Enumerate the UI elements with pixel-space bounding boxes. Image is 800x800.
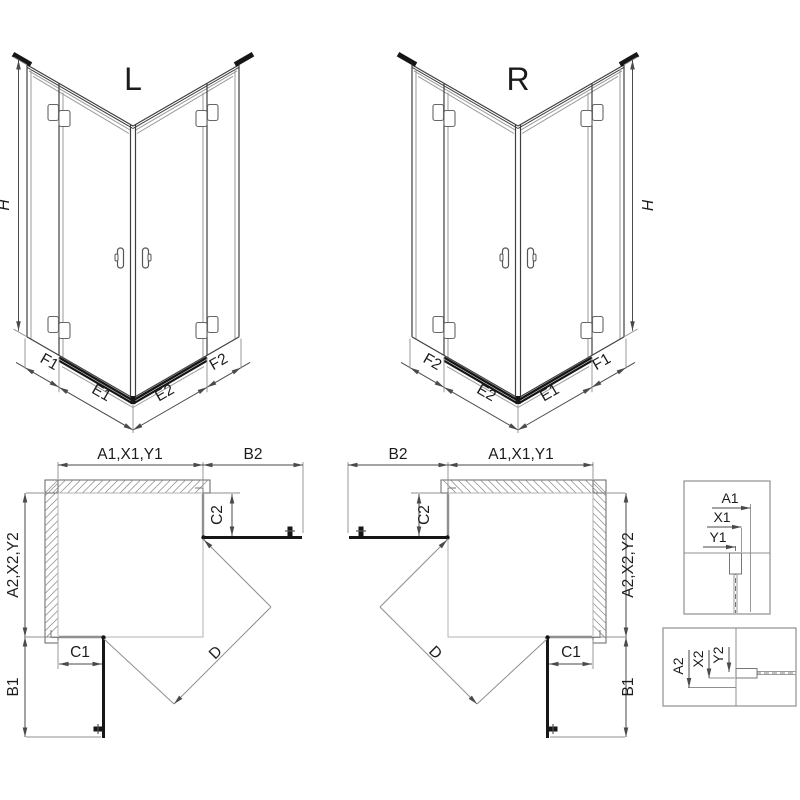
technical-drawing: HLF1E1E2F2HRF2E2E1F1A1,X1,Y1B2A2,X2,Y2B1… <box>0 0 800 800</box>
segment-dim-label: F1 <box>590 350 614 374</box>
detail-dim-label: Y1 <box>709 529 726 545</box>
return-dim-label: B2 <box>244 446 263 463</box>
detail-box-wall-profile-top: A1X1Y1 <box>684 481 770 614</box>
diagonal-dim-label: D <box>425 643 445 663</box>
fixed-panel-dim-label: C2 <box>416 505 433 525</box>
iso-view-left: HLF1E1E2F2 <box>0 54 253 433</box>
return-dim-label: B1 <box>620 678 637 697</box>
iso-view-right: HRF2E2E1F1 <box>398 54 655 433</box>
diagonal-dim-label: D <box>206 643 226 663</box>
height-dim-label: H <box>638 199 655 211</box>
detail-box-wall-profile-bottom: A2X2Y2 <box>663 628 796 706</box>
return-dim-label: B1 <box>5 678 22 697</box>
detail-dim-label: X2 <box>690 650 706 667</box>
width-dim-label: A1,X1,Y1 <box>488 446 554 463</box>
detail-dim-label: X1 <box>713 509 730 525</box>
height-dim-label: H <box>0 199 13 211</box>
depth-dim-label: A2,X2,Y2 <box>620 532 637 598</box>
plan-view-left: A1,X1,Y1B2A2,X2,Y2B1C2C1D <box>5 446 303 738</box>
view-title: R <box>506 61 529 97</box>
plan-view-right: A1,X1,Y1B2A2,X2,Y2B1C2C1D <box>348 446 637 738</box>
width-dim-label: A1,X1,Y1 <box>97 446 163 463</box>
depth-dim-label: A2,X2,Y2 <box>5 532 22 598</box>
detail-dim-label: A2 <box>670 657 686 674</box>
return-dim-label: B2 <box>389 446 408 463</box>
view-title: L <box>124 61 142 97</box>
drawing-canvas: HLF1E1E2F2HRF2E2E1F1A1,X1,Y1B2A2,X2,Y2B1… <box>0 0 800 800</box>
detail-dim-label: A1 <box>721 490 738 506</box>
detail-dim-label: Y2 <box>710 646 726 663</box>
fixed-panel-dim-label: C2 <box>209 505 226 525</box>
segment-dim-label: F1 <box>37 350 61 374</box>
fixed-panel-dim-label: C1 <box>561 644 581 661</box>
fixed-panel-dim-label: C1 <box>70 644 90 661</box>
